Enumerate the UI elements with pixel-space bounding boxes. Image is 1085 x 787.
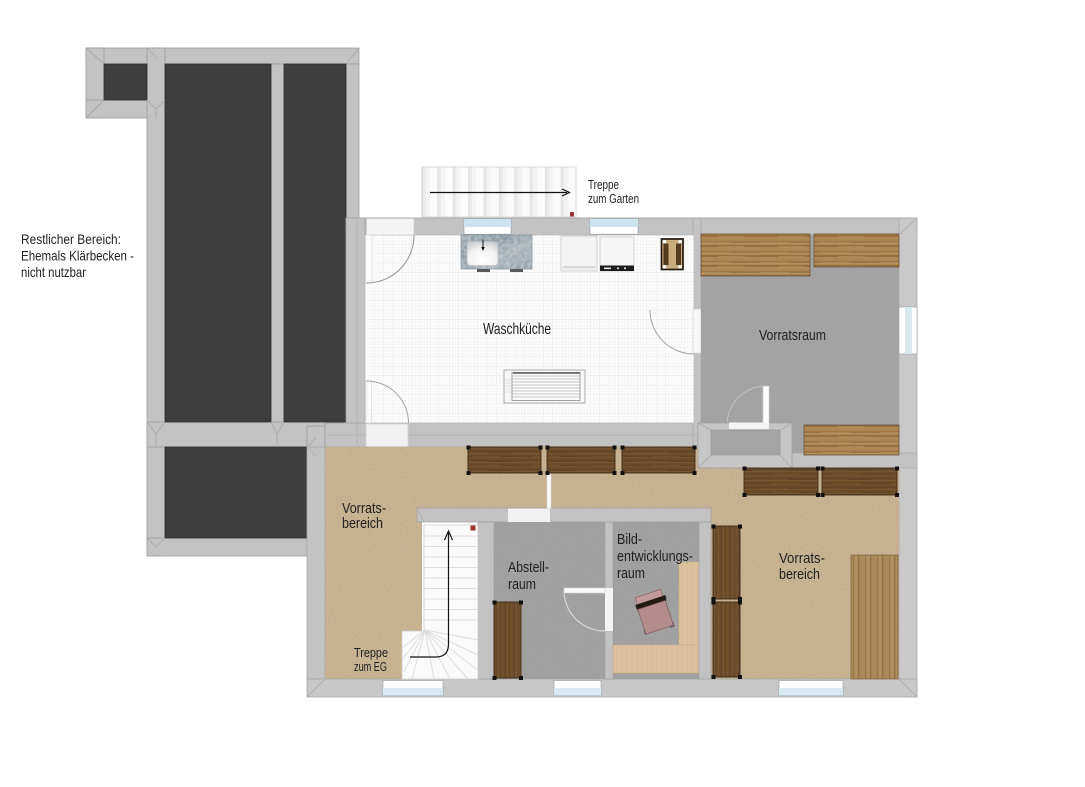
svg-text:Vorratsraum: Vorratsraum [759, 327, 826, 344]
svg-text:Restlicher Bereich:: Restlicher Bereich: [21, 231, 121, 247]
svg-text:Treppe: Treppe [588, 178, 619, 192]
svg-text:zum Garten: zum Garten [588, 192, 639, 206]
svg-text:Bild-: Bild- [617, 532, 642, 548]
svg-text:Abstell-: Abstell- [508, 559, 549, 576]
svg-text:bereich: bereich [779, 566, 820, 583]
svg-text:raum: raum [617, 566, 645, 582]
svg-text:Ehemals Klärbecken -: Ehemals Klärbecken - [21, 248, 134, 264]
svg-text:bereich: bereich [342, 515, 383, 532]
svg-text:Waschküche: Waschküche [483, 321, 551, 338]
svg-text:entwicklungs-: entwicklungs- [617, 549, 693, 565]
svg-text:zum EG: zum EG [354, 660, 387, 674]
svg-text:nicht nutzbar: nicht nutzbar [21, 264, 86, 280]
svg-text:Vorrats-: Vorrats- [779, 550, 825, 567]
svg-text:Treppe: Treppe [354, 646, 388, 660]
svg-text:raum: raum [508, 576, 536, 593]
